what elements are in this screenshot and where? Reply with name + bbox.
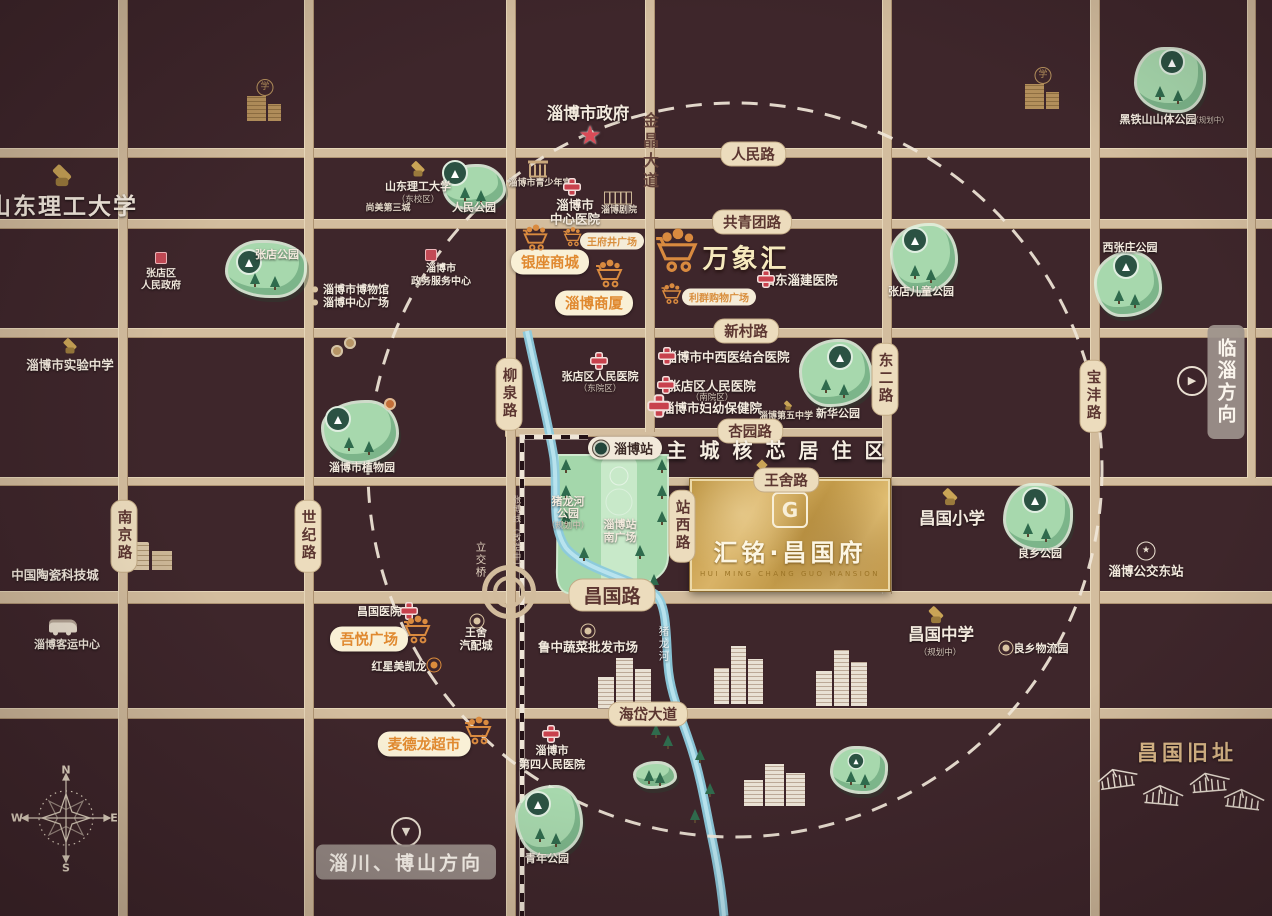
government-icon [425,249,437,261]
tree-icon [705,778,715,794]
place-label: 麦德龙超市 [378,732,471,757]
compass-e: E [110,812,118,825]
tree-icon [910,260,920,276]
graduation-cap-icon [60,341,80,354]
place-label: 西张庄公园 [1103,239,1158,255]
place-label: 青年公园 [525,850,569,866]
government-star-icon: ★ [578,121,601,151]
park-tree-badge-icon [1113,253,1139,279]
place-label: 张店公园 [255,246,299,262]
tree-icon [1023,518,1033,534]
place-label: 淄博剧院 [601,203,637,216]
project-plate: G 汇铭·昌国府 HUI MING CHANG GUO MANSION [690,479,890,591]
tree-icon [663,730,673,746]
arrow-east-icon: ▶ [1177,366,1207,396]
place-label: 吾悦广场 [330,627,408,652]
place-label: 人民政府 [141,277,181,292]
place-label: 良乡公园 [1018,545,1062,561]
place-label: 黑铁山山体公园 [1120,111,1197,127]
building [786,773,805,806]
school-building-icon: 学 [242,79,288,121]
tree-icon [535,823,545,839]
tree-icon [821,374,831,390]
tree-icon [344,432,354,448]
tree-icon [551,828,561,844]
place-label: （规划中） [547,519,590,531]
graduation-cap-icon [925,609,947,623]
place-label: 汽配城 [460,637,493,653]
road-label: 宝沣路 [1080,360,1107,433]
park-tree-badge-icon [827,344,853,370]
hospital-cross-icon [659,378,674,393]
market-ring-icon [470,614,485,629]
place-label: 昌国小学 [919,505,985,529]
real-estate-location-map: G 汇铭·昌国府 HUI MING CHANG GUO MANSION 主城核芯… [0,0,1272,916]
place-label: 淄博商厦 [555,291,633,316]
decor-dot-icon [331,345,343,357]
place-label: 鲁中蔬菜批发市场 [538,637,638,656]
place-label: 昌国旧址 [1137,737,1237,767]
park-tree-badge-icon [325,406,351,432]
place-label: 良乡物流园 [1014,640,1069,656]
place-label: 昌国中学 [908,621,974,645]
place-label: 中心医院 [550,209,600,228]
tree-icon [250,268,260,284]
road-label: 海岱大道 [608,702,688,727]
building [268,104,281,121]
project-logo: G [772,492,808,528]
building [816,671,832,706]
school-building-icon: 学 [1020,67,1066,109]
hospital-cross-icon [649,396,669,416]
road-label: 新村路 [713,319,779,344]
building [247,96,266,121]
interchange-icon [482,565,536,619]
place-label: （规划中） [1191,115,1229,126]
compass-w: W [11,812,23,825]
place-label: 山东理工大学 [385,178,451,194]
road-label: 昌国路 [568,579,655,612]
place-label: 山东淄建医院 [762,270,837,289]
bus-station-star-icon: ★ [1137,542,1156,561]
road-label: 共青团路 [712,210,792,235]
shopping-cart-icon [521,224,551,256]
tree-icon [690,804,700,820]
place-label: 新华公园 [816,405,860,421]
market-ring-icon [999,641,1014,656]
building [834,650,850,706]
bus-icon [49,620,77,633]
tree-icon [635,540,645,556]
park-tree-badge-icon [1159,49,1185,75]
city-buildings [714,646,764,704]
hospital-cross-icon [565,180,580,195]
hospital-cross-icon [660,349,675,364]
arrow-south-icon: ▼ [391,817,421,847]
tree-icon [579,542,589,558]
graduation-cap-icon [939,491,961,505]
old-site-house-sketch [1220,784,1267,817]
place-label: 中国陶瓷科技城 [11,565,99,584]
building [1046,92,1059,109]
graduation-cap-icon [408,164,428,177]
core-area-slogan: 主城核芯居住区 [667,435,898,464]
tree-icon [644,765,654,781]
tree-icon [657,506,667,522]
hospital-cross-icon [544,727,559,742]
hospital-cross-icon [759,272,774,287]
place-label: 淄博公交东站 [1108,561,1183,580]
place-label: 淄博中心广场 [323,294,389,310]
compass-n: N [61,764,70,777]
shopping-cart-icon [562,227,584,252]
road-label: 世纪路 [295,500,322,573]
building [1025,84,1044,109]
tree-icon [657,480,667,496]
road-label: 人民路 [720,142,786,167]
school-badge-icon: 学 [1035,67,1052,84]
place-label: 政务服务中心 [411,273,471,288]
market-ring-icon [427,658,442,673]
place-label: 山东理工大学 [0,187,138,221]
place-label: 第四人民医院 [519,756,585,772]
tree-icon [561,454,571,470]
place-label: 王府井广场 [580,233,644,250]
place-label: 昌国医院 [357,603,401,619]
place-label: 淄博客运中心 [34,636,100,652]
place-label: 尚美第三城 [365,201,410,214]
school-badge-icon: 学 [257,79,274,96]
shopping-cart-icon [594,259,626,293]
shopping-cart-icon [463,716,495,750]
shopping-cart-icon [653,228,703,279]
project-name: 汇铭·昌国府 [713,533,866,568]
city-buildings [744,764,806,806]
city-buildings [816,650,868,706]
tree-icon [839,379,849,395]
tree-icon [860,769,870,785]
decor-dot-icon [344,337,356,349]
graduation-cap-icon [48,168,76,186]
road-label: 东二路 [872,343,899,416]
place-label: 淄博市实验中学 [26,355,114,374]
tree-icon [926,264,936,280]
zibo-station-badge: 淄博站 [588,437,662,460]
building [748,659,763,704]
building [714,668,729,704]
road-name: 金晶大道 [637,112,661,192]
direction-southwest: 淄川、博山方向 [316,845,496,880]
place-label: 红星美凯龙 [372,658,427,674]
place-label: 淄博市植物园 [329,459,395,475]
place-label: （规划中） [919,646,962,658]
road-label: 站西路 [669,490,696,563]
place-label: 张店儿童公园 [888,283,954,299]
tree-icon [1130,289,1140,305]
place-label: 利群购物广场 [682,289,756,306]
station-label: 淄博站 [614,439,653,458]
old-site-house-sketch [1140,781,1186,813]
tree-icon [657,454,667,470]
shopping-cart-icon [660,283,684,310]
road-label: 王舍路 [753,468,819,493]
road-label: 南京路 [111,500,138,573]
decor-dot-icon [384,398,396,410]
bullet-icon: ● [312,285,319,294]
place-label: 立交桥 [474,541,489,579]
place-label: 南广场 [604,529,637,545]
hospital-cross-icon [592,354,607,369]
tree-icon [1173,85,1183,101]
park-tree-badge-icon [1022,487,1048,513]
tree-icon [270,271,280,287]
park-tree-badge-icon [525,791,551,817]
direction-east: 临淄方向 [1208,325,1245,439]
tree-icon [1114,285,1124,301]
place-label: 人民公园 [452,199,496,215]
tree-icon [364,436,374,452]
park-tree-badge-icon [902,227,928,253]
city-buildings [598,658,652,708]
place-label: 张博线（改造中） [510,495,522,571]
place-label: 淄博市中西医结合医院 [664,347,789,366]
building [851,662,867,706]
government-icon [155,252,167,264]
tree-icon [1041,523,1051,539]
building [731,646,746,704]
shopping-cart-icon [402,615,434,649]
place-label: 淄博市妇幼保健院 [662,398,762,417]
tree-icon [695,744,705,760]
compass-s: S [62,862,70,875]
market-ring-icon [581,624,596,639]
place-label: （东院区） [579,382,622,394]
tree-icon [460,182,470,198]
place-label: 淄博市青少年宫 [508,176,571,189]
building [765,764,784,806]
project-name-en: HUI MING CHANG GUO MANSION [700,570,880,578]
tree-icon [846,766,856,782]
place-label: 猪龙河 [657,625,672,663]
road-label: 柳泉路 [496,358,523,431]
building [616,658,632,708]
building [744,780,763,806]
graduation-cap-icon [782,402,794,410]
bullet-icon: ● [312,298,319,307]
tree-icon [655,767,665,783]
train-icon [592,439,610,457]
tree-icon [1155,81,1165,97]
